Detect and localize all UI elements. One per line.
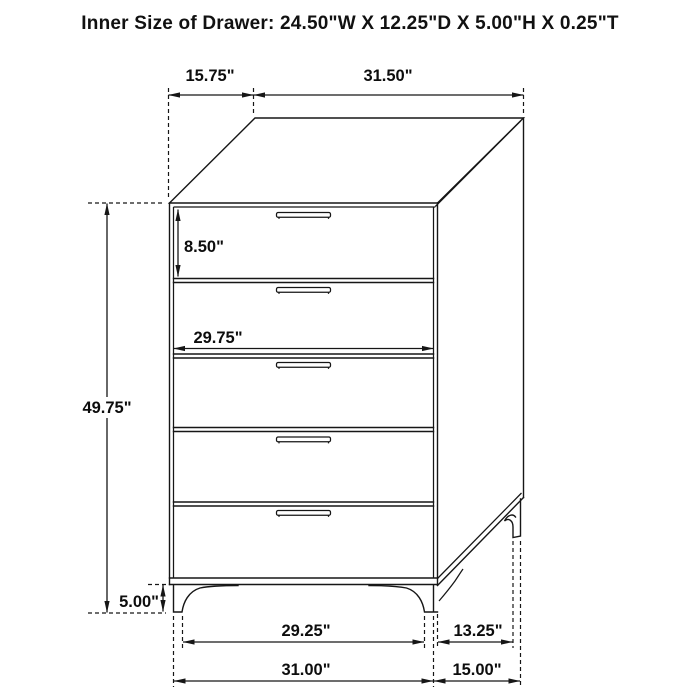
dim-top-width-label: 31.50": [363, 67, 412, 85]
chest-legs: [174, 499, 521, 612]
drawer-handle-3-icon: [277, 363, 331, 369]
dim-total-depth: 15.00": [434, 661, 520, 681]
dim-total-height: 49.75": [81, 204, 133, 613]
dim-drawer-front-height-label: 8.50": [184, 238, 224, 256]
chest-front-face: [170, 203, 438, 585]
dim-front-leg-clearance-label: 29.25": [281, 622, 330, 640]
chest-line-drawing: 15.75" 31.50" 8.50" 29.75" 49.75": [0, 0, 700, 700]
drawer-dividers: [174, 279, 434, 507]
drawer-handle-2-icon: [277, 288, 331, 294]
drawer-handle-5-icon: [277, 511, 331, 517]
top-panel-outline: [170, 118, 524, 203]
dim-drawer-front-height: 8.50": [178, 210, 224, 277]
drawer-handle-4-icon: [277, 437, 331, 443]
chest-top-panel: [170, 118, 524, 207]
dim-total-height-label: 49.75": [82, 399, 131, 417]
dim-top-depth-label: 15.75": [185, 67, 234, 85]
chest-body: [170, 118, 524, 612]
back-right-leg: [505, 499, 521, 538]
dim-side-leg-clearance-label: 13.25": [453, 622, 502, 640]
dim-total-width-label: 31.00": [281, 661, 330, 679]
dim-drawer-width-label: 29.75": [193, 329, 242, 347]
dim-front-leg-clearance: 29.25": [183, 622, 424, 642]
dim-top-depth: 15.75": [169, 67, 254, 95]
dim-total-width: 31.00": [174, 661, 433, 681]
dim-top-width: 31.50": [254, 67, 524, 95]
dim-leg-height-label: 5.00": [119, 593, 159, 611]
front-left-leg: [174, 585, 239, 612]
side-panel-bottom-edge: [438, 498, 524, 586]
side-panel-rail-line: [438, 493, 522, 579]
dim-drawer-width: 29.75": [174, 329, 434, 349]
dim-side-leg-clearance: 13.25": [438, 622, 513, 642]
product-dimension-diagram: Inner Size of Drawer: 24.50"W X 12.25"D …: [0, 0, 700, 700]
drawer-handles: [277, 213, 331, 517]
front-right-leg: [369, 585, 438, 612]
dim-total-depth-label: 15.00": [452, 661, 501, 679]
dim-leg-height: 5.00": [119, 585, 163, 612]
drawer-handle-1-icon: [277, 213, 331, 219]
